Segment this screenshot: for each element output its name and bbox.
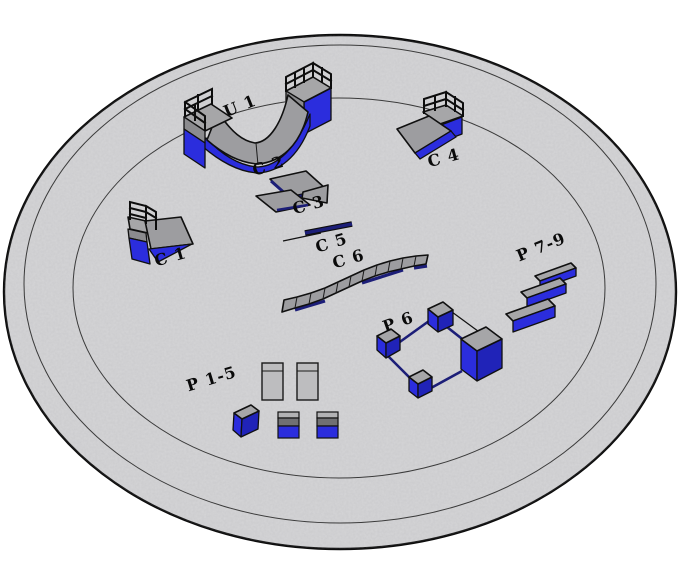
p2-board bbox=[297, 363, 318, 400]
p4-block bbox=[278, 412, 299, 438]
p1-board bbox=[262, 363, 283, 400]
skatepark-3d-illustration: U 1 C 1 C 4 C 2 C 3 C 5 bbox=[0, 0, 680, 579]
skatepark-scene: U 1 C 1 C 4 C 2 C 3 C 5 bbox=[0, 0, 680, 579]
p5-block bbox=[317, 412, 338, 438]
